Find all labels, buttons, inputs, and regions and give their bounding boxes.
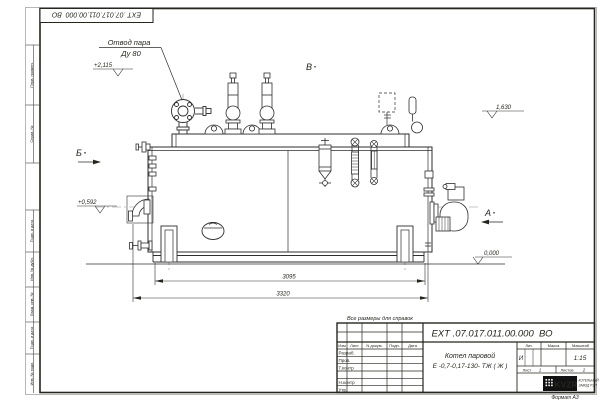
tb-product-line2: Е -0,7-0,17-130- ТЖ ( Ж ) bbox=[433, 363, 508, 370]
tb-col-data: Дата bbox=[408, 343, 418, 348]
tb-product-line1: Котел паровой bbox=[445, 352, 495, 360]
gost-drawing-svg: Перв. примен. Справ. № Подп. и дата Инв.… bbox=[0, 0, 600, 400]
tb-lit-value: И bbox=[519, 356, 524, 362]
format-note: Формат А3 bbox=[551, 395, 579, 400]
reference-note: Все размеры для справок bbox=[347, 316, 413, 322]
level-electrode-outline bbox=[379, 93, 395, 125]
elev-1630: 1,630 bbox=[496, 105, 512, 111]
tb-col-podp: Подп. bbox=[389, 343, 400, 348]
tb-row-razrab: Разраб. bbox=[339, 351, 355, 356]
tb-scale-value: 1:15 bbox=[574, 355, 587, 362]
tb-sheets-label: Листов bbox=[561, 368, 574, 373]
elev-0000: 0,000 bbox=[484, 251, 500, 257]
view-label-b-mark bbox=[84, 152, 86, 154]
corner-stamp-text: ЕХТ .07.017.011.00.000 ВО bbox=[51, 11, 141, 18]
view-label-a: А bbox=[484, 208, 491, 218]
skid-base bbox=[153, 252, 424, 262]
pressure-gauge-siphon bbox=[409, 97, 423, 133]
tb-col-docum: N докум. bbox=[366, 343, 382, 348]
stamp-podp-data-2: Подп. и дата bbox=[30, 326, 34, 349]
callout-line2: Ду 80 bbox=[120, 49, 141, 58]
stamp-perv-primen: Перв. примен. bbox=[30, 62, 34, 87]
dim-3320: 3320 bbox=[276, 292, 290, 298]
tb-sheet-value: 1 bbox=[539, 368, 542, 373]
elev-0592: +0,592 bbox=[78, 200, 97, 206]
view-label-a-mark bbox=[493, 212, 495, 214]
tb-sheets-value: 2 bbox=[582, 368, 586, 373]
steam-outlet-flange bbox=[172, 100, 212, 135]
tb-sheet-label: Лист bbox=[523, 368, 532, 373]
stamp-vzam-inv: Взам. инв. № bbox=[30, 292, 34, 316]
view-label-b: Б bbox=[76, 148, 82, 158]
view-label-v: В bbox=[306, 62, 312, 72]
view-label-v-mark bbox=[314, 66, 316, 68]
boiler-shell bbox=[148, 147, 432, 252]
elev-2115: +2,115 bbox=[94, 63, 113, 69]
tb-col-izm: Изм bbox=[338, 343, 346, 348]
company-logo: KVZR КОТЕЛЬНЫЙ ЗАВОД РЭП bbox=[543, 376, 599, 391]
manhole bbox=[202, 223, 224, 240]
view-arrow-b bbox=[93, 160, 101, 165]
stamp-sprav-no: Справ. № bbox=[30, 125, 34, 142]
drawing-sheet: Перв. примен. Справ. № Подп. и дата Инв.… bbox=[0, 0, 600, 400]
callout-line1: Отвод пара bbox=[108, 38, 151, 47]
company-line1: КОТЕЛЬНЫЙ bbox=[579, 379, 600, 383]
stamp-podp-data-1: Подп. и дата bbox=[30, 219, 34, 242]
stamp-inv-dubl: Инв. № дубл. bbox=[30, 257, 34, 281]
tb-row-utv: Утв. bbox=[339, 387, 348, 392]
company-line2: ЗАВОД РЭП bbox=[579, 384, 598, 388]
tb-mass-label: Масса bbox=[548, 343, 561, 348]
view-arrow-a bbox=[481, 220, 489, 225]
dim-3095: 3095 bbox=[282, 275, 296, 281]
tb-row-nkontr: Н.контр bbox=[339, 380, 356, 385]
tb-row-tkontr: Т.контр bbox=[339, 365, 355, 370]
logo-text: KVZR bbox=[554, 380, 577, 390]
tb-row-prov: Пров. bbox=[339, 358, 351, 363]
tb-designation: ЕХТ .07.017.011.00.000 ВО bbox=[431, 329, 553, 340]
corner-stamp: ЕХТ .07.017.011.00.000 ВО bbox=[40, 9, 153, 23]
stamp-inv-podl: Инв. № подл. bbox=[30, 362, 34, 386]
tb-scale-label: Масштаб bbox=[572, 343, 590, 348]
tb-col-list: Лист bbox=[350, 343, 359, 348]
tb-lit-label: Лит. bbox=[525, 343, 532, 348]
